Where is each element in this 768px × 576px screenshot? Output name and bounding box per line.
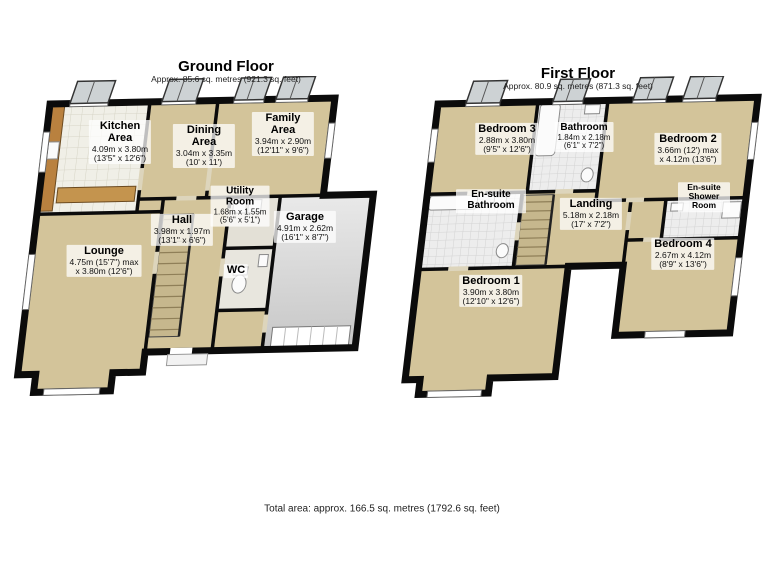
room-dims-imperial: (6'1" x 7'2") <box>558 142 611 151</box>
ground-floor-subtitle: Approx. 85.6 sq. metres (921.3 sq. feet) <box>151 74 301 85</box>
room-label-hall: Hall 3.98m x 1.97m (13'1" x 6'6") <box>151 214 213 246</box>
room-label-bedroom3: Bedroom 3 2.88m x 3.80m (9'5" x 12'6") <box>475 123 538 155</box>
room-label-garage: Garage 4.91m x 2.62m (16'1" x 8'7") <box>274 211 336 243</box>
room-dims-imperial: (8'9" x 13'6") <box>654 260 711 269</box>
room-dims-imperial: (9'5" x 12'6") <box>478 145 535 154</box>
porch-step <box>166 354 207 366</box>
first-floor-subtitle: Approx. 80.9 sq. metres (871.3 sq. feet) <box>503 81 653 92</box>
room-dims-imperial: (5'6" x 5'1") <box>214 217 267 226</box>
room-label-dining: Dining Area 3.04m x 3.35m (10' x 11') <box>173 124 235 168</box>
room-name: Kitchen Area <box>94 121 146 145</box>
room-label-bathroom: Bathroom 1.84m x 2.18m (6'1" x 7'2") <box>555 122 614 152</box>
total-area-note: Total area: approx. 166.5 sq. metres (17… <box>264 504 500 515</box>
room-name: Dining Area <box>180 125 228 149</box>
room-label-family: Family Area 3.94m x 2.90m (12'11" x 9'6"… <box>252 112 314 156</box>
room-dims-imperial: (16'1" x 8'7") <box>277 233 333 242</box>
room-label-landing: Landing 5.18m x 2.18m (17' x 7'2") <box>560 198 622 230</box>
room-dims-imperial: (12'10" x 12'6") <box>462 297 519 306</box>
room-label-bedroom1: Bedroom 1 3.90m x 3.80m (12'10" x 12'6") <box>459 275 522 307</box>
first-floor-title-block: First Floor Approx. 80.9 sq. metres (871… <box>503 66 653 92</box>
room-dims-imperial: (17' x 7'2") <box>563 220 619 229</box>
garage-door-icon <box>270 326 350 348</box>
room-dims-imperial: x 4.12m (13'6") <box>657 155 718 164</box>
floorplan-page: { "page": { "background": "#ffffff", "to… <box>0 0 768 576</box>
room-label-bedroom4: Bedroom 4 2.67m x 4.12m (8'9" x 13'6") <box>651 238 714 270</box>
ground-floor-title-block: Ground Floor Approx. 85.6 sq. metres (92… <box>151 59 301 85</box>
room-label-lounge: Lounge 4.75m (15'7") max x 3.80m (12'6") <box>67 245 142 277</box>
room-label-bedroom2: Bedroom 2 3.66m (12') max x 4.12m (13'6"… <box>654 133 721 165</box>
room-label-kitchen: Kitchen Area 4.09m x 3.80m (13'5" x 12'6… <box>89 120 151 164</box>
kitchen-island-icon <box>56 186 136 203</box>
room-label-wc: WC <box>224 264 248 278</box>
ground-floor-title: Ground Floor <box>151 59 301 74</box>
room-name: Utility Room <box>216 187 264 209</box>
room-name: En-suite Bathroom <box>459 190 523 212</box>
room-label-utility: Utility Room 1.68m x 1.55m (5'6" x 5'1") <box>211 186 270 227</box>
room-name: En-suite Shower Room <box>681 183 727 211</box>
first-floor-title: First Floor <box>503 66 653 81</box>
room-dims-imperial: x 3.80m (12'6") <box>70 267 139 276</box>
room-dims-imperial: (13'5" x 12'6") <box>92 154 148 163</box>
room-dims-imperial: (12'11" x 9'6") <box>255 146 311 155</box>
room-name: WC <box>227 265 245 277</box>
room-name: Family Area <box>259 113 307 137</box>
room-dims-imperial: (13'1" x 6'6") <box>154 236 210 245</box>
room-label-ensuite-bathroom: En-suite Bathroom <box>456 189 526 213</box>
room-dims-imperial: (10' x 11') <box>176 158 232 167</box>
room-label-ensuite-shower: En-suite Shower Room <box>678 182 730 212</box>
